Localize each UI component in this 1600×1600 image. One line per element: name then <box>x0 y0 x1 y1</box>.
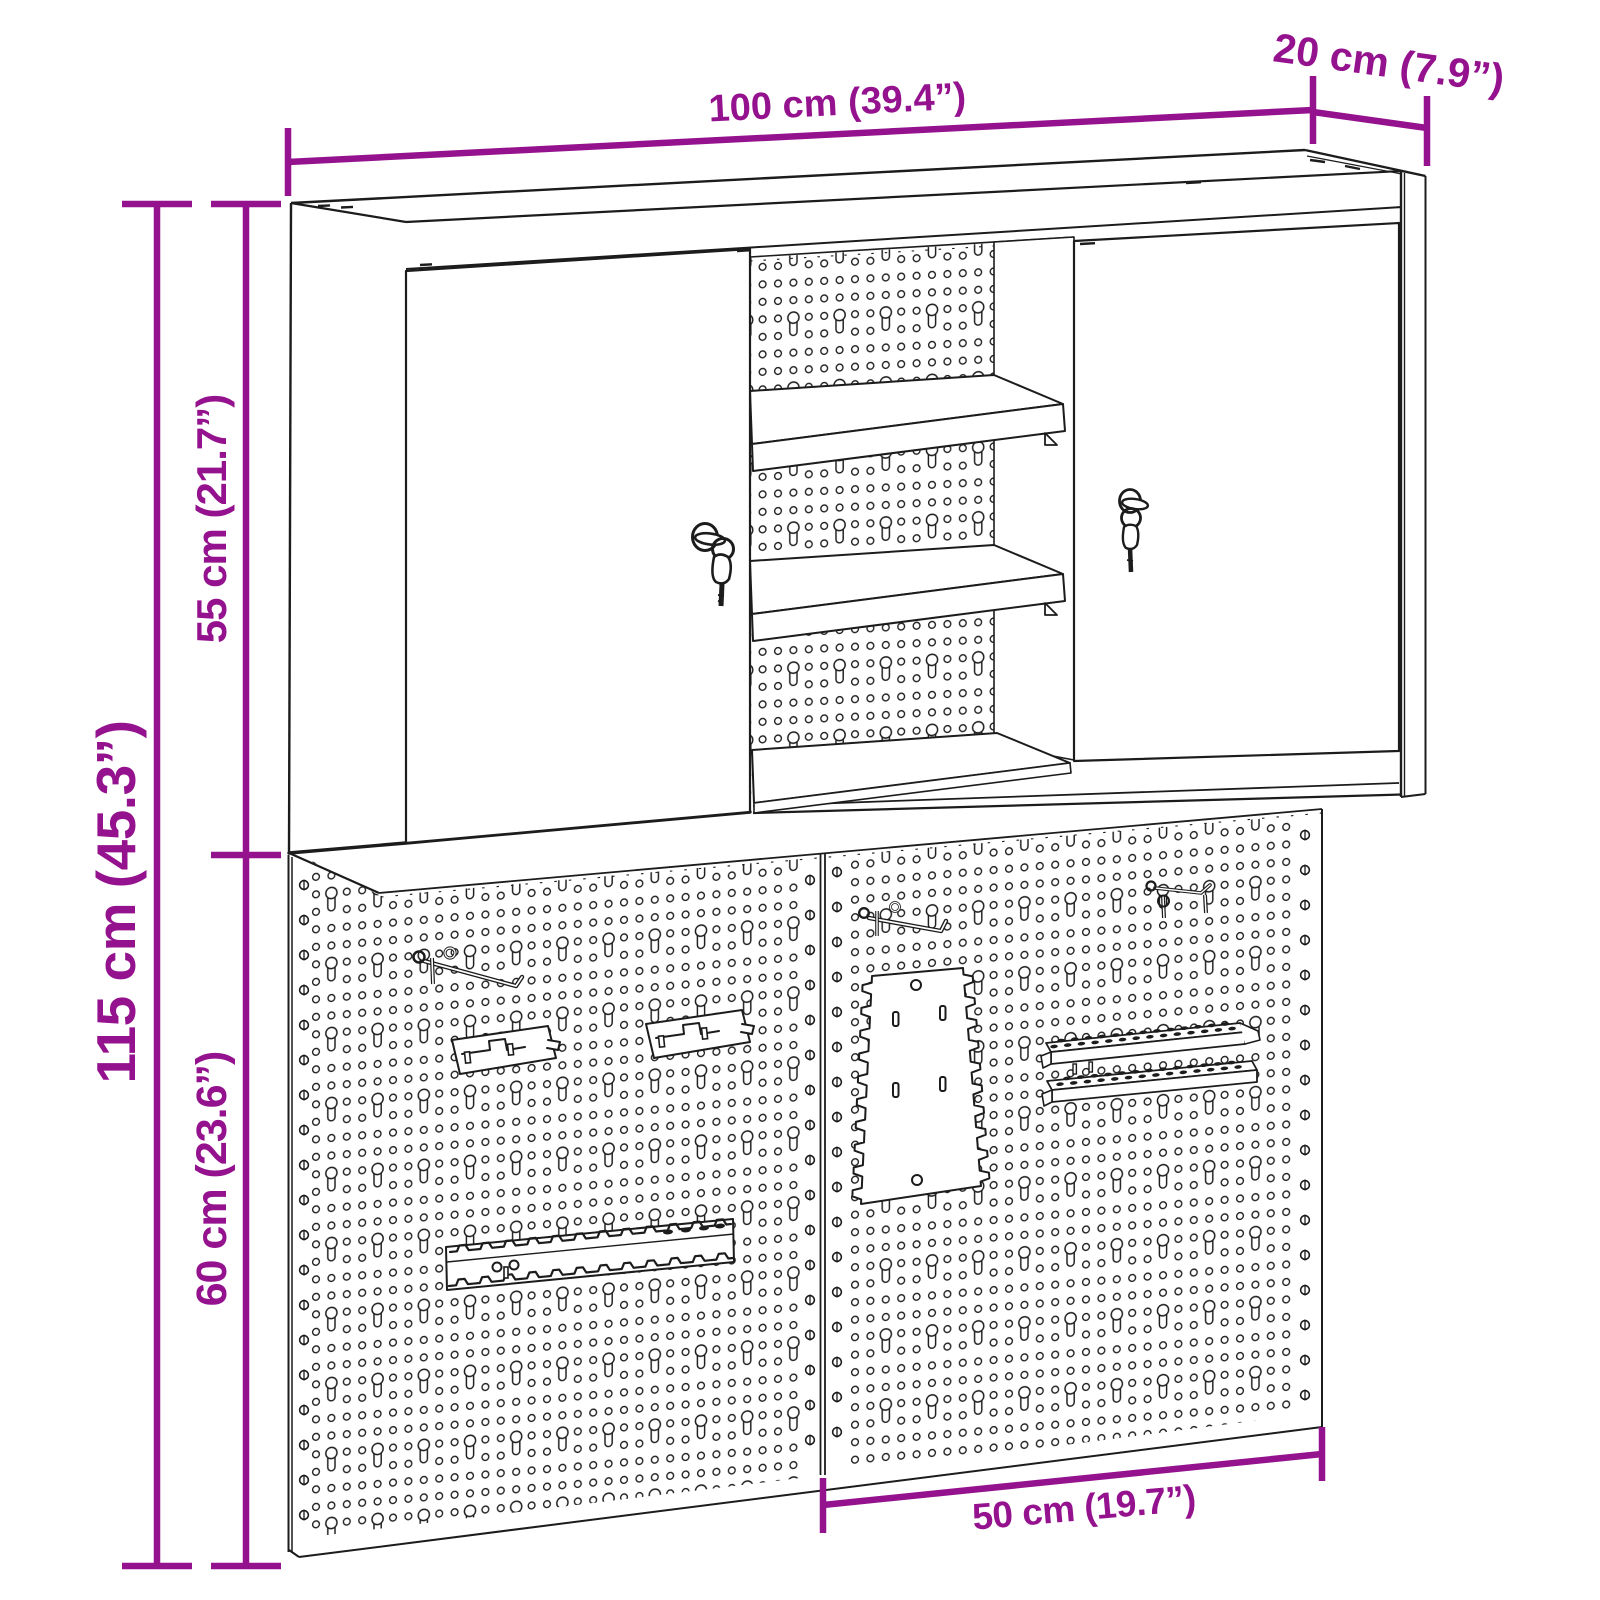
svg-text:55 cm (21.7”): 55 cm (21.7”) <box>188 395 235 643</box>
svg-text:115 cm (45.3”): 115 cm (45.3”) <box>85 721 147 1084</box>
svg-text:60 cm (23.6”): 60 cm (23.6”) <box>188 1052 236 1307</box>
